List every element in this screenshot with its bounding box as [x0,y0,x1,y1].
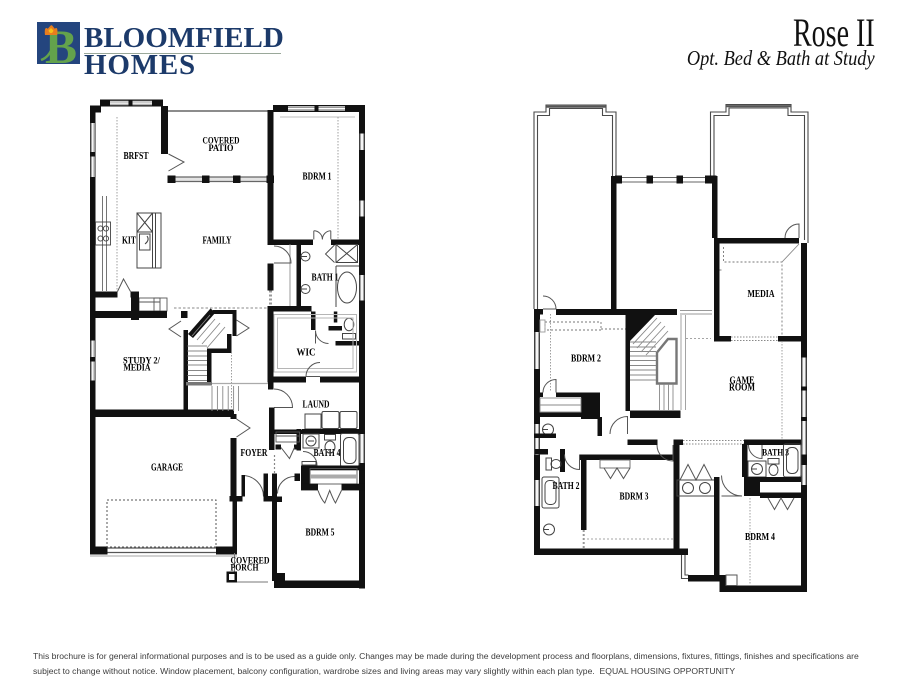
svg-text:BDRM 3: BDRM 3 [620,492,649,503]
svg-text:GARAGE: GARAGE [151,463,183,474]
svg-text:BATH 2: BATH 2 [553,481,580,492]
svg-text:PORCH: PORCH [231,563,259,573]
svg-text:BRFST: BRFST [124,151,149,162]
svg-text:BATH 1: BATH 1 [312,273,339,284]
svg-text:PATIO: PATIO [209,144,234,154]
svg-text:WIC: WIC [297,348,316,359]
svg-text:BATH 3: BATH 3 [762,449,789,459]
svg-text:MEDIA: MEDIA [748,289,776,300]
svg-text:BATH 4: BATH 4 [314,448,341,459]
svg-text:ROOM: ROOM [729,383,755,394]
svg-text:BDRM 4: BDRM 4 [745,532,775,543]
svg-text:MEDIA: MEDIA [124,363,151,373]
svg-text:BDRM 5: BDRM 5 [306,528,335,539]
svg-text:LAUND: LAUND [303,400,330,411]
svg-text:BDRM 1: BDRM 1 [303,172,332,183]
svg-text:BDRM 2: BDRM 2 [571,354,601,365]
svg-text:FOYER: FOYER [241,448,269,459]
svg-text:FAMILY: FAMILY [203,236,233,247]
svg-text:KIT: KIT [122,236,136,247]
